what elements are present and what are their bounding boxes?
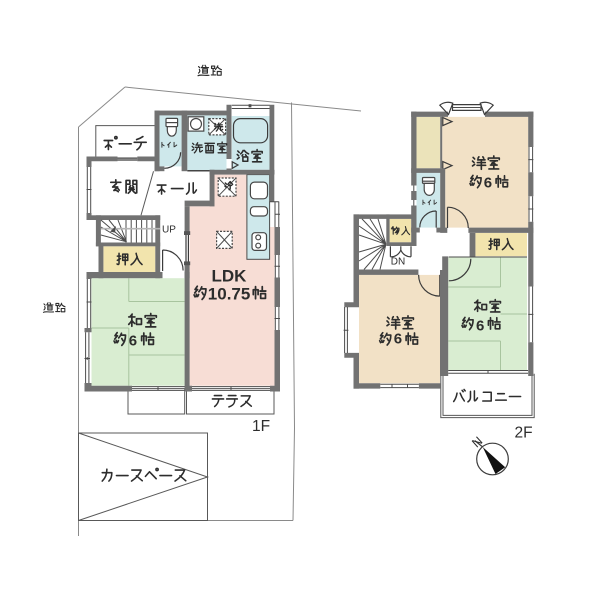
- svg-text:UP: UP: [162, 225, 176, 236]
- svg-text:2F: 2F: [515, 424, 533, 441]
- svg-text:N: N: [469, 434, 485, 450]
- svg-text:1F: 1F: [252, 418, 270, 435]
- svg-text:6: 6: [394, 331, 402, 348]
- svg-text:6: 6: [476, 317, 484, 334]
- svg-text:DN: DN: [391, 257, 405, 268]
- svg-text:6: 6: [129, 332, 137, 349]
- svg-text:10.75: 10.75: [208, 284, 251, 303]
- svg-text:LDK: LDK: [212, 267, 248, 286]
- svg-text:6: 6: [484, 175, 492, 192]
